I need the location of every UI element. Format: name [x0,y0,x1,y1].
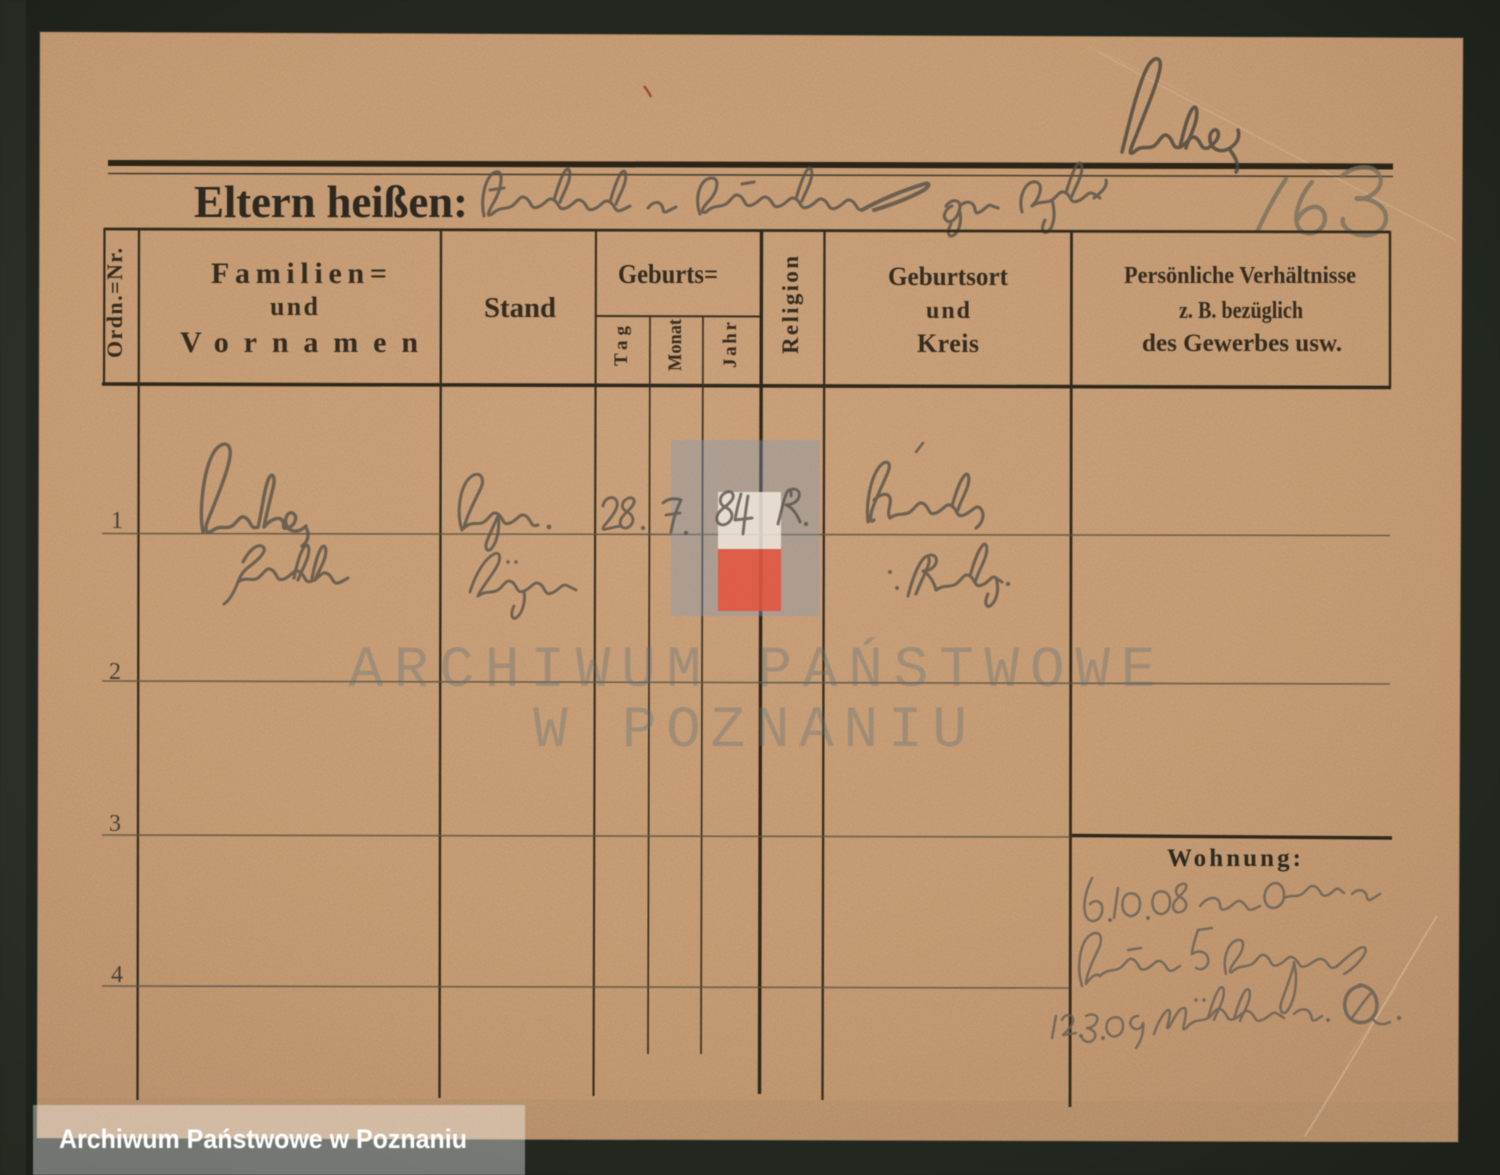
svg-text:des Gewerbes usw.: des Gewerbes usw. [1142,330,1342,357]
svg-text:Archiwum Państwowe w Poznaniu: Archiwum Państwowe w Poznaniu [59,1124,467,1154]
svg-text:z. B. bezüglich: z. B. bezüglich [1179,298,1303,324]
svg-text:Stand: Stand [484,292,556,324]
svg-text:Eltern heißen:: Eltern heißen: [194,177,468,227]
svg-text:1: 1 [111,508,123,534]
svg-text:Ordn.=Nr.: Ordn.=Nr. [102,248,127,358]
svg-text:Monat: Monat [665,318,686,371]
svg-text:3: 3 [109,811,121,837]
svg-text:2: 2 [109,659,121,685]
svg-text:Geburts=: Geburts= [618,259,718,289]
svg-text:Wohnung:: Wohnung: [1167,845,1301,872]
svg-text:und: und [926,298,971,324]
svg-text:Persönliche Verhältnisse: Persönliche Verhältnisse [1124,263,1356,289]
svg-text:4: 4 [111,962,123,988]
svg-text:Kreis: Kreis [917,329,979,358]
svg-text:und: und [270,292,319,321]
svg-text:Geburtsort: Geburtsort [888,262,1008,291]
svg-text:Tag: Tag [611,326,632,367]
